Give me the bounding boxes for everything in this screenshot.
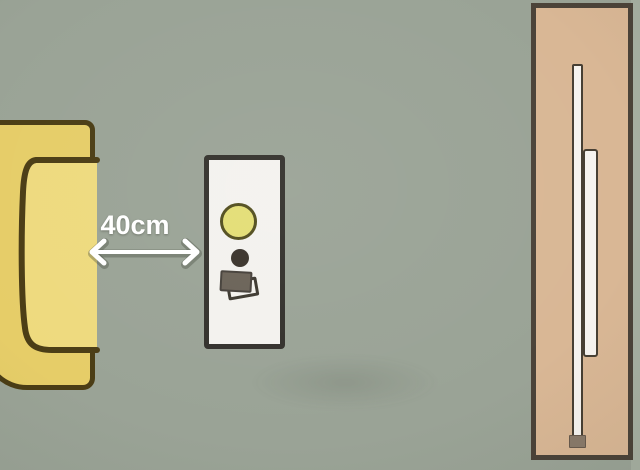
table-lamp: [220, 203, 257, 240]
floor-shadow-smudge: [250, 355, 440, 410]
door-handle: [569, 435, 586, 448]
distance-arrow-shadow: [93, 243, 198, 265]
nightstand: [204, 155, 285, 349]
bed: [0, 120, 95, 390]
book-top: [219, 270, 252, 293]
sliding-door-panel: [583, 149, 598, 357]
sliding-door-edge: [572, 64, 583, 437]
distance-label: 40cm: [93, 210, 177, 241]
room-top-view: 40cm: [0, 0, 640, 470]
arrow-right-chevron-icon: [185, 241, 197, 263]
wardrobe: [531, 3, 633, 460]
distance-arrow: [92, 241, 197, 263]
cup: [231, 249, 249, 267]
